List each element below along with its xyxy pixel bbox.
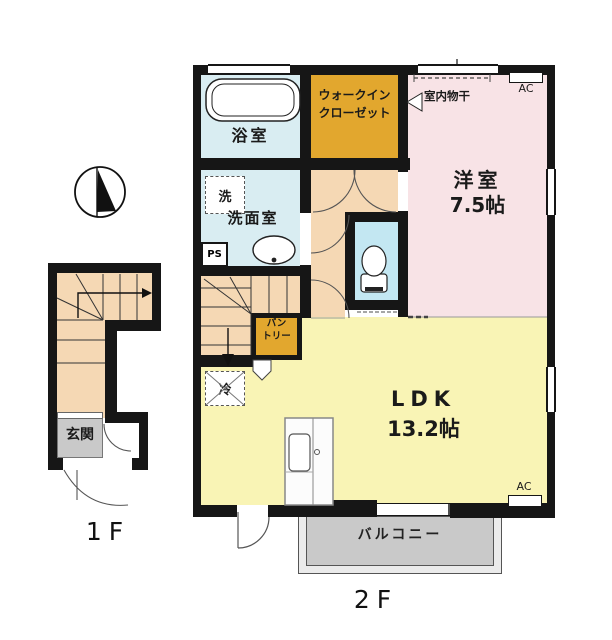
bathtub-icon (206, 79, 300, 121)
floor2-label: 2F (336, 586, 416, 614)
bathroom-label: 浴室 (201, 127, 300, 145)
western-room-label: 洋室 (408, 169, 547, 191)
washroom-label: 洗面室 (201, 210, 305, 227)
pantry-door-icon (253, 360, 271, 380)
floor-plan: 洗 冷 PS (0, 0, 612, 640)
toilet-icon (361, 246, 387, 292)
pantry-label-line2: トリー (251, 332, 302, 342)
ac-label-western: AC (509, 83, 543, 95)
entrance-label: 玄関 (57, 428, 103, 443)
room-boundary-lines (311, 59, 547, 516)
washbasin-icon (253, 236, 295, 264)
ldk-size: 13.2帖 (300, 418, 547, 441)
ac-label-ldk: AC (506, 481, 542, 493)
wic-label-line1: ウォークイン (311, 89, 398, 102)
refrigerator-cross-lines (206, 372, 244, 405)
floor1-label: 1F (68, 518, 148, 546)
ldk-label: LDK (300, 388, 547, 411)
hall-door-arcs (311, 170, 396, 318)
stairs-2f-down-arrow (222, 328, 234, 366)
pantry-label-line1: パン (251, 319, 302, 329)
indoor-drying-label: 室内物干 (424, 90, 470, 103)
north-arrow-icon (75, 167, 125, 217)
ldk-bottom-door-arc (238, 512, 269, 548)
balcony-label: バルコニー (306, 528, 494, 543)
stairs-1f-treads (57, 274, 137, 363)
callout-pointer-icon (407, 93, 422, 111)
stairs-2f-treads (201, 276, 287, 355)
ac-unit-ldk (508, 495, 542, 507)
western-room-size: 7.5帖 (408, 194, 547, 216)
wic-label-line2: クローゼット (311, 107, 398, 120)
